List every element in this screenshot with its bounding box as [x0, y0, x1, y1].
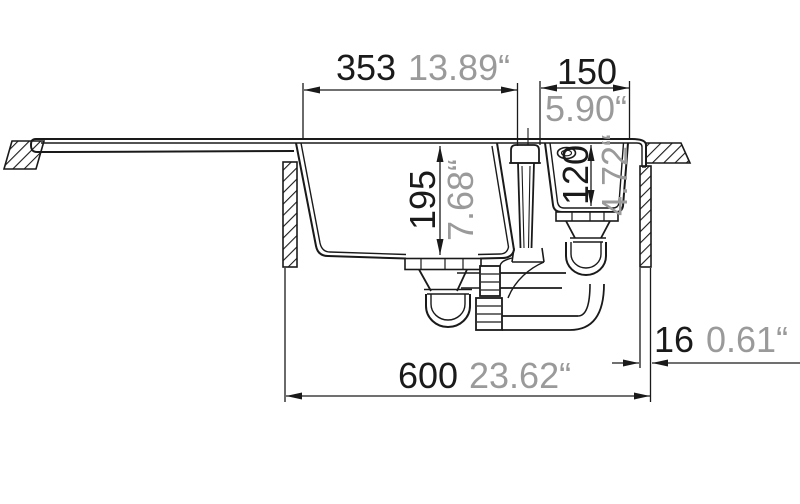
dim-edge-distance-mm: 16: [654, 319, 694, 360]
dimension-main-bowl-width: 353 13.89“: [303, 47, 518, 146]
dim-main-bowl-depth-mm: 195: [402, 170, 443, 230]
countertop-left-section: [4, 141, 44, 169]
small-drain-trap: [556, 212, 618, 275]
dim-main-bowl-width-inch: 13.89“: [408, 47, 510, 88]
overflow-column: [509, 128, 544, 262]
countertop-right-section: [640, 143, 690, 267]
dim-cabinet-width-inch: 23.62“: [469, 355, 571, 396]
pipe-fittings: [476, 266, 502, 330]
dim-small-bowl-depth-mm: 120: [555, 145, 596, 205]
cabinet-left-wall-section: [283, 162, 297, 267]
main-drain-trap: [405, 259, 481, 328]
dim-cabinet-width-mm: 600: [398, 355, 458, 396]
dim-main-bowl-depth-inch: 7.68“: [440, 159, 481, 241]
sink-technical-drawing: 353 13.89“ 150 5.90“ 195 7.68“ 120 4.72“…: [0, 0, 800, 504]
drawing-canvas: 353 13.89“ 150 5.90“ 195 7.68“ 120 4.72“…: [0, 0, 800, 504]
dimension-small-bowl-width: 150 5.90“: [540, 51, 630, 145]
dimension-edge-distance: 16 0.61“: [612, 268, 800, 402]
dimension-small-bowl-depth: 120 4.72“: [555, 134, 635, 216]
dim-main-bowl-width-mm: 353: [336, 47, 396, 88]
sink-rim-profile: [31, 139, 646, 167]
dim-small-bowl-depth-inch: 4.72“: [594, 134, 635, 216]
dim-edge-distance-inch: 0.61“: [706, 319, 788, 360]
dim-small-bowl-width-mm: 150: [557, 51, 617, 92]
dim-small-bowl-width-inch: 5.90“: [545, 88, 627, 129]
dimension-main-bowl-depth: 195 7.68“: [402, 146, 481, 255]
